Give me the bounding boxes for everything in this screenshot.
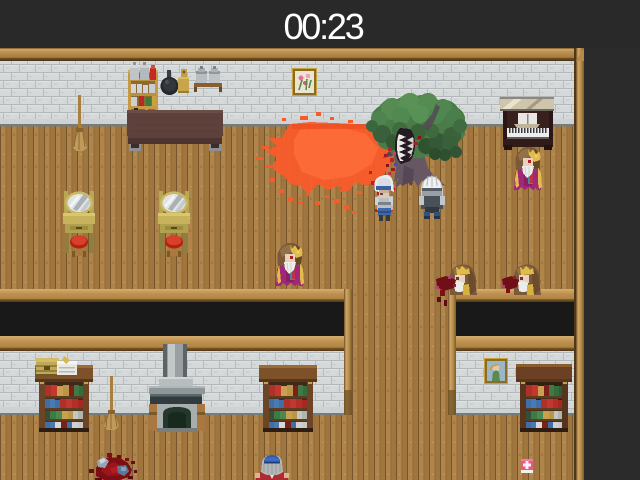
svg-text:00:23: 00:23 <box>283 6 363 47</box>
